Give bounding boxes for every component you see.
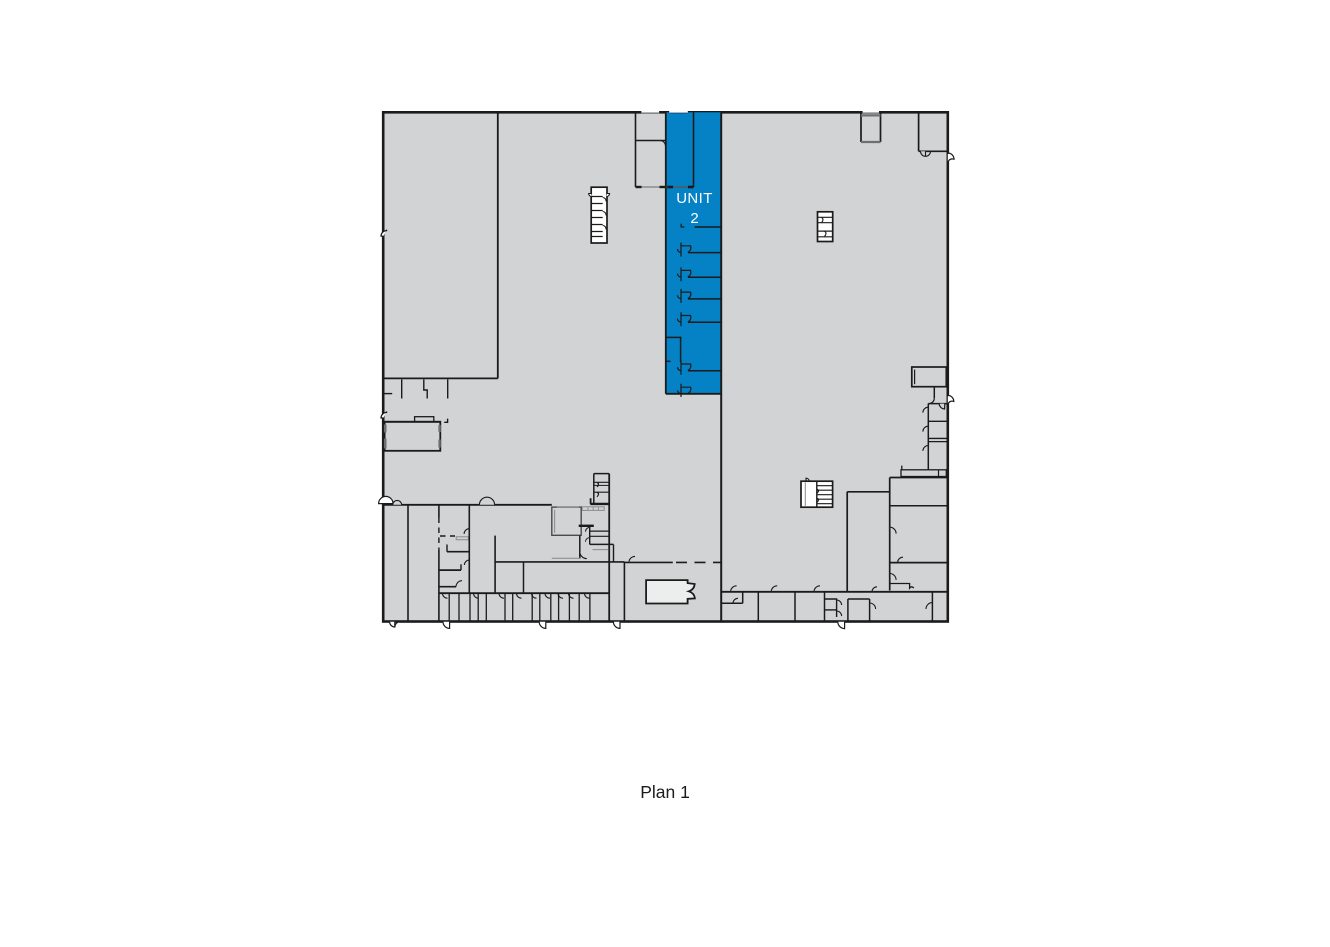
svg-text:2: 2	[690, 210, 698, 227]
svg-text:UNIT: UNIT	[676, 190, 713, 207]
svg-text:Plan 1: Plan 1	[640, 782, 690, 802]
